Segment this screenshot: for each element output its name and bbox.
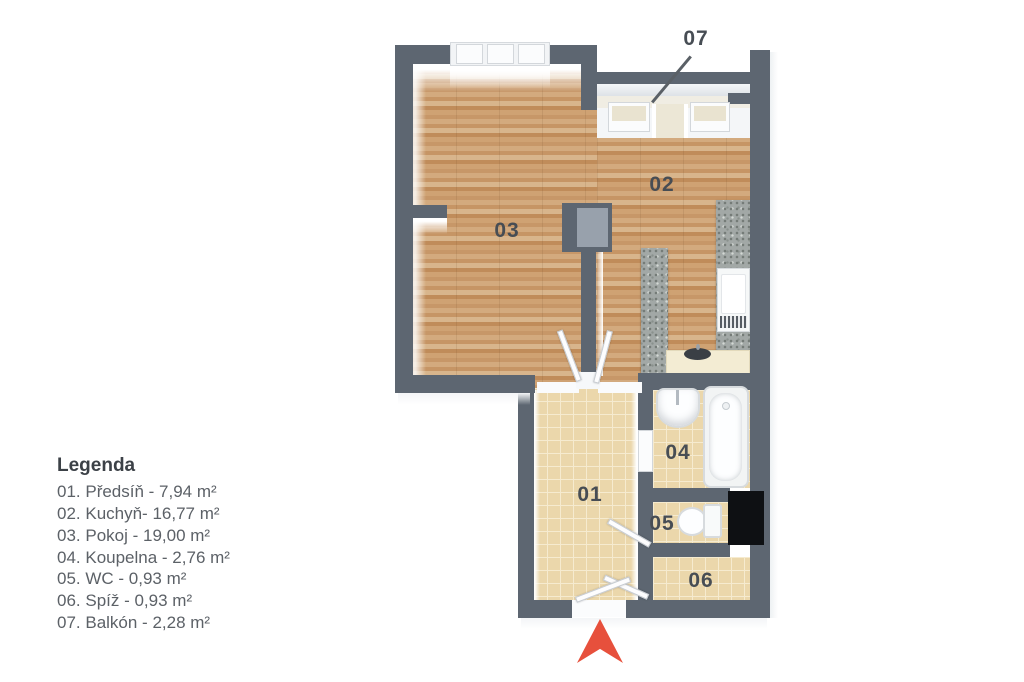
entrance-threshold [572,600,626,617]
legend-item-04: 04. Koupelna - 2,76 m² [57,547,230,569]
legend: Legenda 01. Předsíň - 7,94 m² 02. Kuchyň… [57,454,230,634]
room-label-07: 07 [683,27,708,51]
bathtub-drain [722,402,730,410]
balcony-door-opening [652,104,688,138]
legend-item-07: 07. Balkón - 2,28 m² [57,612,230,634]
legend-item-03: 03. Pokoj - 19,00 m² [57,525,230,547]
wall-face-hall-right [631,390,638,602]
balcony-window-right-pane [694,106,726,121]
bathroom-faucet [676,390,679,405]
balcony-window-left-pane [612,106,646,121]
column-chimney-inner [577,208,608,247]
wall-04-05 [638,488,730,502]
wall-hallway-left [518,388,534,602]
legend-title: Legenda [57,454,230,478]
window-top-pane-1 [456,44,483,64]
wall-balcony-divider [581,45,597,110]
outer-face-room03 [398,393,530,405]
threshold-hall-room02 [598,382,642,393]
room-label-03: 03 [494,219,519,243]
wall-left [395,45,413,393]
window-top-pane-2 [487,44,514,64]
wall-stub-face [413,218,447,234]
legend-item-05: 05. WC - 0,93 m² [57,568,230,590]
wall-partition-03-02 [581,252,596,376]
room-label-05: 05 [649,512,674,536]
wall-stub-room03 [413,205,447,218]
wall-bottom-right-segment [626,600,770,618]
door-bathroom-04 [638,430,653,472]
floor-plan-page: 01 02 03 04 05 06 07 Legenda 01. Předsíň… [0,0,1024,682]
room-label-06: 06 [688,569,713,593]
room-label-01: 01 [577,483,602,507]
legend-item-01: 01. Předsíň - 7,94 m² [57,481,230,503]
legend-item-06: 06. Spíž - 0,93 m² [57,590,230,612]
wall-05-06 [638,543,730,557]
window-top-pane-3 [518,44,545,64]
outer-face-right [770,52,778,618]
outer-face-bottom [521,618,767,629]
wall-bottom-left-segment [518,600,572,618]
stove-top [721,274,746,314]
room-label-02: 02 [649,173,674,197]
legend-item-02: 02. Kuchyň- 16,77 m² [57,503,230,525]
wall-room03-bottom [395,375,535,393]
toilet-tank [703,504,722,538]
kitchen-counter-left [641,248,668,373]
window-top-sill-glow [450,66,550,88]
wall-balcony-right-stub [728,93,752,104]
room-label-04: 04 [665,441,690,465]
kitchen-faucet [696,344,700,350]
threshold-hall-room03 [537,382,579,393]
shaft [728,491,764,545]
wall-face-hall-left [534,390,540,602]
stove-grill [720,316,747,328]
